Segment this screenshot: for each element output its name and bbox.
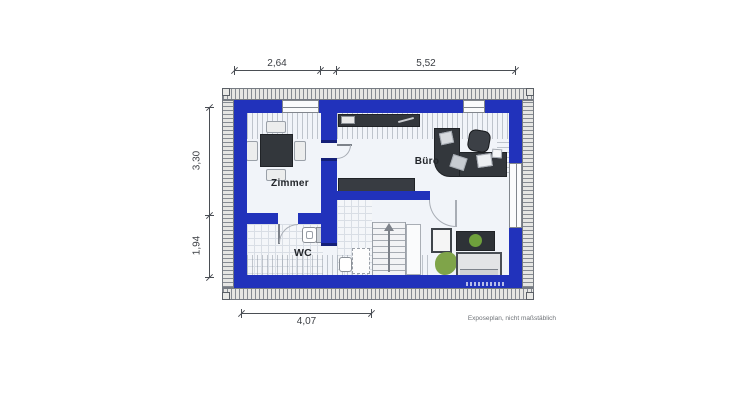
roof-hatch-top (222, 88, 534, 100)
dimension-line-top (234, 70, 516, 71)
wall-cap (321, 243, 337, 246)
room-label-zimmer: Zimmer (260, 178, 320, 190)
corner-mark (526, 88, 534, 96)
sideboard-item-icon (341, 116, 355, 124)
interior-wall-wc (298, 213, 321, 224)
wall-cap (321, 158, 337, 161)
chair-icon (294, 141, 306, 161)
dimension-label: 3,30 (192, 141, 203, 181)
hall-bench-icon (338, 178, 415, 192)
chair-icon (246, 141, 258, 161)
corner-mark (222, 88, 230, 96)
toilet-icon (306, 231, 313, 239)
room-label-wc: WC (288, 247, 318, 259)
armchair-icon (431, 228, 452, 253)
watermark-text (466, 282, 505, 286)
floorplan-page: Zimmer Büro WC 2,64 5,52 3,30 1,94 4,07 … (0, 0, 752, 400)
roof-hatch-bottom (222, 288, 534, 300)
dimension-label: 4,07 (241, 316, 372, 327)
interior-wall-zimmer (321, 158, 337, 246)
plan-caption: Exposeplan, nicht maßstäblich (420, 314, 556, 324)
document-icon (476, 153, 493, 168)
corner-mark (222, 292, 230, 300)
shower-dashed-icon (352, 248, 370, 274)
chair-icon (266, 121, 286, 133)
dimension-label: 2,64 (234, 58, 320, 69)
dimension-label: 1,94 (192, 226, 203, 266)
corner-mark (526, 292, 534, 300)
window-icon (509, 163, 522, 228)
document-icon (492, 149, 503, 159)
room-label-buero: Büro (405, 156, 449, 168)
roof-hatch-left (222, 100, 234, 288)
exterior-wall-left (234, 100, 247, 288)
window-icon (282, 100, 319, 113)
stairs-up-arrow-icon (388, 231, 390, 272)
stairs-up-arrowhead-icon (384, 223, 394, 231)
interior-wall-stub (321, 113, 337, 143)
interior-wall-hall (337, 191, 430, 200)
stairs-landing (406, 224, 421, 275)
roof-hatch-right (522, 100, 534, 288)
sink-icon (339, 257, 352, 272)
dimension-line-bottom (241, 313, 372, 314)
wall-cap (321, 140, 337, 143)
dimension-line-left (209, 107, 210, 278)
interior-wall-wc (247, 213, 278, 224)
dimension-label: 5,52 (336, 58, 516, 69)
dining-table-icon (260, 134, 293, 167)
window-icon (463, 100, 485, 113)
plant-icon (469, 234, 482, 247)
